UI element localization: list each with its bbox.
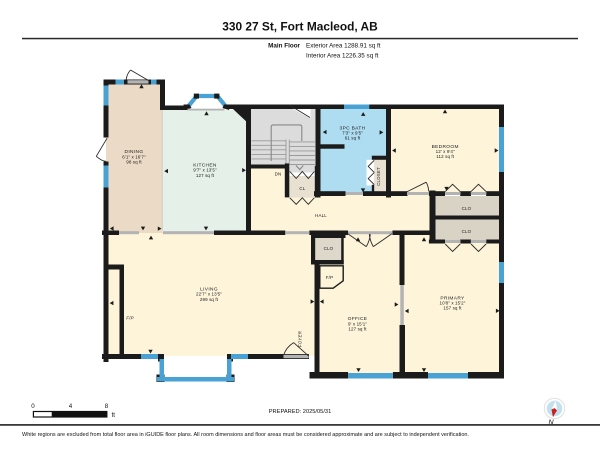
svg-text:98 sq ft: 98 sq ft [126, 160, 142, 165]
svg-text:ft: ft [112, 412, 116, 419]
svg-text:299 sq ft: 299 sq ft [200, 297, 219, 302]
svg-text:PREPARED: 2025/05/31: PREPARED: 2025/05/31 [269, 409, 332, 415]
svg-text:0: 0 [31, 403, 35, 410]
svg-text:9'7" x 13'5": 9'7" x 13'5" [193, 168, 217, 173]
svg-text:4: 4 [69, 403, 73, 410]
svg-text:22'7" x 13'5": 22'7" x 13'5" [196, 292, 222, 297]
svg-text:9' x 15'1": 9' x 15'1" [348, 321, 367, 326]
svg-text:330 27 St, Fort Macleod, AB: 330 27 St, Fort Macleod, AB [222, 20, 378, 34]
svg-text:CLO: CLO [462, 206, 472, 211]
svg-text:F/P: F/P [126, 316, 133, 321]
svg-text:HALL: HALL [315, 213, 327, 218]
svg-text:CLO: CLO [324, 246, 334, 251]
svg-text:112 sq ft: 112 sq ft [436, 154, 454, 159]
svg-text:White regions are excluded fro: White regions are excluded from total fl… [22, 432, 469, 438]
svg-text:CL: CL [299, 186, 305, 191]
svg-text:Exterior Area 1288.91 sq ft: Exterior Area 1288.91 sq ft [306, 43, 381, 50]
svg-text:127 sq ft: 127 sq ft [348, 327, 367, 332]
svg-text:8: 8 [105, 403, 109, 410]
svg-text:DN: DN [275, 172, 282, 177]
svg-text:6'1" x 16'7": 6'1" x 16'7" [122, 154, 146, 159]
svg-text:61 sq ft: 61 sq ft [345, 136, 361, 141]
svg-text:FOYER: FOYER [298, 330, 303, 347]
svg-text:Main Floor: Main Floor [268, 43, 300, 50]
svg-text:CLO: CLO [462, 229, 472, 234]
svg-text:127 sq ft: 127 sq ft [196, 173, 215, 178]
svg-text:157 sq ft: 157 sq ft [443, 306, 462, 311]
svg-text:Interior Area 1226.35 sq ft: Interior Area 1226.35 sq ft [306, 52, 379, 59]
svg-text:CLOSET: CLOSET [376, 167, 381, 186]
svg-text:F/P: F/P [326, 275, 333, 280]
